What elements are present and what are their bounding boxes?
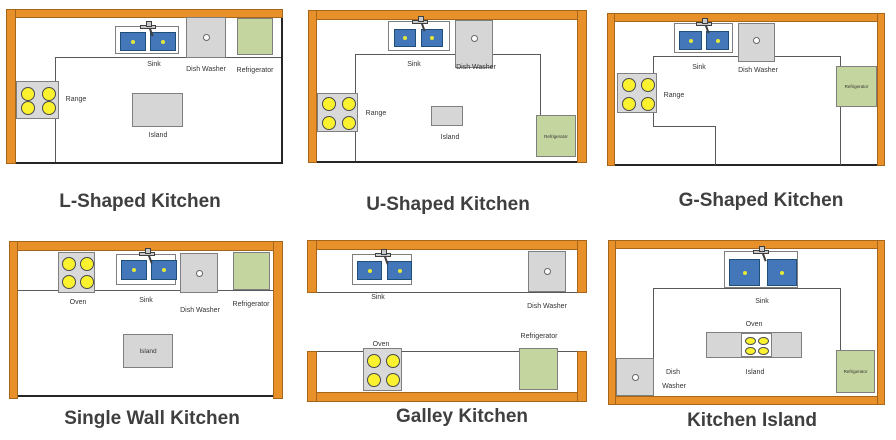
- refrigerator: [519, 348, 558, 390]
- island: [431, 106, 463, 126]
- diagram-title: U-Shaped Kitchen: [366, 194, 530, 216]
- refrigerator-label: Refrigerator: [233, 301, 270, 308]
- counter-band-right: [577, 10, 587, 163]
- dishwasher-knob-icon: [196, 270, 203, 277]
- dish-washer: [180, 253, 218, 293]
- counter-band-bottom: [608, 396, 885, 405]
- counter-band-left: [9, 241, 18, 399]
- counter-edge-line: [653, 288, 654, 358]
- sink-label: Sink: [147, 61, 161, 68]
- burner-icon: [42, 87, 56, 101]
- counter-band-right-cap: [577, 240, 587, 293]
- counter-band-right: [877, 13, 885, 166]
- range-label: Range: [66, 96, 87, 103]
- counter-band-left: [308, 10, 317, 163]
- sink-basin: [387, 261, 412, 280]
- faucet-icon: [412, 20, 428, 24]
- range: [617, 73, 657, 113]
- dish-washer-label: Dish Washer: [456, 64, 496, 71]
- burner-icon: [21, 87, 35, 101]
- refrigerator: Refrigerator: [836, 66, 877, 107]
- refrigerator-inner-label: Refrigerator: [544, 134, 568, 139]
- burner-icon: [367, 354, 381, 368]
- counter-band-top: [6, 9, 283, 18]
- counter-edge-line: [55, 57, 281, 58]
- l-shaped-kitchen-diagram: Sink Dish Washer Refrigerator Range Isla…: [6, 9, 283, 164]
- burner-icon: [322, 97, 336, 111]
- dish-washer: [616, 358, 654, 396]
- kitchen-island-diagram: Refrigerator Sink Oven Island Dish Washe…: [608, 240, 885, 405]
- sink: [116, 254, 176, 285]
- dishwasher-knob-icon: [471, 35, 478, 42]
- island: Island: [123, 334, 173, 368]
- dishwasher-knob-icon: [753, 37, 760, 44]
- burner-icon: [386, 354, 400, 368]
- island-oven: [741, 333, 772, 357]
- counter-band-left: [608, 240, 616, 405]
- dish-washer: [738, 23, 775, 62]
- burner-icon: [641, 78, 655, 92]
- refrigerator-label: Refrigerator: [521, 333, 558, 340]
- faucet-icon: [375, 253, 391, 257]
- sink: [674, 23, 733, 53]
- burner-icon: [386, 373, 400, 387]
- sink: [388, 21, 450, 51]
- diagram-title: Galley Kitchen: [396, 406, 528, 428]
- counter-band-top: [307, 240, 587, 250]
- refrigerator-inner-label: Refrigerator: [845, 84, 869, 89]
- single-wall-kitchen-diagram: Island Oven Sink Dish Washer Refrigerato…: [9, 241, 283, 399]
- burner-icon: [322, 116, 336, 130]
- dish-washer-label: Dish Washer: [180, 307, 220, 314]
- island-label: Island: [149, 132, 168, 139]
- sink-label: Sink: [139, 297, 153, 304]
- burner-icon: [42, 101, 56, 115]
- counter-band-bottom: [307, 392, 587, 402]
- faucet-icon: [139, 252, 155, 256]
- counter-band-top: [608, 240, 885, 249]
- sink-basin: [357, 261, 382, 280]
- refrigerator-label: Refrigerator: [237, 67, 274, 74]
- g-shaped-kitchen-diagram: Refrigerator Sink Dish Washer Range: [607, 13, 885, 166]
- peninsula-edge-line: [715, 126, 716, 165]
- dish-washer: [455, 20, 493, 68]
- sink-label: Sink: [371, 294, 385, 301]
- island: [132, 93, 183, 127]
- counter-band-left-cap: [307, 240, 317, 293]
- burner-icon: [80, 275, 94, 289]
- counter-band-top: [607, 13, 885, 22]
- sink-basin: [421, 29, 443, 47]
- diagram-title: G-Shaped Kitchen: [679, 190, 844, 212]
- burner-icon: [62, 275, 76, 289]
- burner-icon: [342, 97, 356, 111]
- sink: [724, 251, 798, 288]
- dish-washer-label: Dish Washer: [186, 66, 226, 73]
- burner-icon: [641, 97, 655, 111]
- diagram-title: Kitchen Island: [687, 410, 817, 432]
- oven-label: Oven: [746, 321, 763, 328]
- counter-band-left: [6, 9, 16, 164]
- sink-basin: [151, 260, 177, 280]
- refrigerator: Refrigerator: [836, 350, 875, 393]
- range: [16, 81, 59, 119]
- range: [317, 93, 358, 132]
- counter-band-top: [308, 10, 587, 20]
- refrigerator: [237, 18, 273, 55]
- sink-label: Sink: [692, 64, 706, 71]
- burner-icon: [342, 116, 356, 130]
- range-label: Range: [664, 92, 685, 99]
- burner-icon: [745, 337, 756, 345]
- diagram-title: Single Wall Kitchen: [64, 408, 240, 430]
- counter-edge-line: [840, 288, 841, 350]
- dishwasher-knob-icon: [203, 34, 210, 41]
- sink-basin: [150, 32, 176, 51]
- burner-icon: [758, 347, 769, 355]
- burner-icon: [745, 347, 756, 355]
- dish-label: Dish: [666, 369, 680, 376]
- counter-band-left-cap: [307, 351, 317, 402]
- refrigerator: [233, 252, 270, 290]
- counter-band-left: [607, 13, 615, 166]
- burner-icon: [622, 78, 636, 92]
- oven: [58, 252, 95, 293]
- oven-label: Oven: [373, 341, 390, 348]
- peninsula-edge-line: [653, 126, 716, 127]
- faucet-icon: [140, 25, 156, 29]
- kitchen-layouts-figure: Sink Dish Washer Refrigerator Range Isla…: [0, 0, 896, 440]
- dishwasher-knob-icon: [632, 374, 639, 381]
- counter-edge-line: [653, 288, 841, 289]
- sink-basin: [121, 260, 147, 280]
- oven: [363, 348, 402, 391]
- island-label: Island: [441, 134, 460, 141]
- sink: [352, 254, 412, 285]
- dish-washer: [528, 251, 566, 292]
- diagram-title: L-Shaped Kitchen: [59, 191, 221, 213]
- counter-band-right: [877, 240, 885, 405]
- dish-washer-label: Dish Washer: [738, 67, 778, 74]
- burner-icon: [80, 257, 94, 271]
- sink-basin: [706, 31, 729, 50]
- counter-edge-line: [540, 54, 541, 115]
- counter-edge-line: [355, 54, 540, 55]
- faucet-icon: [753, 250, 769, 254]
- dishwasher-knob-icon: [544, 268, 551, 275]
- washer-label: Washer: [662, 383, 686, 390]
- sink-basin: [767, 259, 797, 286]
- refrigerator: Refrigerator: [536, 115, 576, 157]
- sink-label: Sink: [407, 61, 421, 68]
- refrigerator-inner-label: Refrigerator: [844, 369, 868, 374]
- u-shaped-kitchen-diagram: Refrigerator Sink Dish Washer Range Isla…: [308, 10, 587, 163]
- island-label: Island: [746, 369, 765, 376]
- sink-basin: [679, 31, 702, 50]
- dish-washer-label: Dish Washer: [527, 303, 567, 310]
- island-inner-label: Island: [139, 348, 156, 355]
- burner-icon: [367, 373, 381, 387]
- sink-basin: [729, 259, 760, 286]
- sink-label: Sink: [755, 298, 769, 305]
- faucet-icon: [696, 22, 712, 26]
- burner-icon: [21, 101, 35, 115]
- counter-band-right-cap: [577, 351, 587, 402]
- sink-basin: [120, 32, 146, 51]
- burner-icon: [622, 97, 636, 111]
- range-label: Range: [366, 110, 387, 117]
- galley-kitchen-diagram: Sink Dish Washer Oven Refrigerator: [307, 240, 587, 402]
- burner-icon: [62, 257, 76, 271]
- counter-edge-line: [18, 290, 273, 291]
- dish-washer: [186, 17, 226, 58]
- sink: [115, 26, 179, 54]
- counter-band-right: [273, 241, 283, 399]
- oven-label: Oven: [70, 299, 87, 306]
- sink-basin: [394, 29, 416, 47]
- burner-icon: [758, 337, 769, 345]
